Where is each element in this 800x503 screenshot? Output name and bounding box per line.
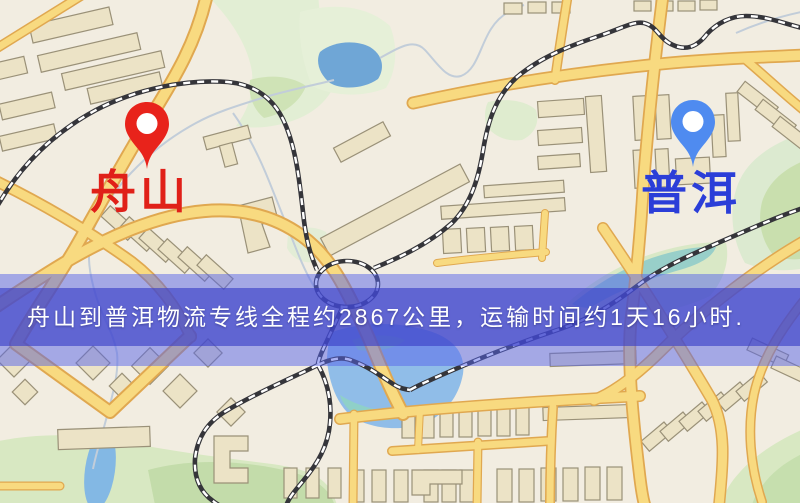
route-info-banner: 舟山到普洱物流专线全程约2867公里，运输时间约1天16小时. xyxy=(0,274,800,366)
route-info-text: 舟山到普洱物流专线全程约2867公里，运输时间约1天16小时. xyxy=(0,288,800,346)
route-info-band: 舟山到普洱物流专线全程约2867公里，运输时间约1天16小时. xyxy=(0,288,800,346)
destination-label: 普洱 xyxy=(641,171,741,217)
origin-label: 舟山 xyxy=(90,170,190,216)
destination-pin-icon xyxy=(667,97,719,176)
map-canvas xyxy=(0,0,800,503)
map-screenshot: 舟山 普洱 舟山到普洱物流专线全程约2867公里，运输时间约1天16小时. xyxy=(0,0,800,503)
